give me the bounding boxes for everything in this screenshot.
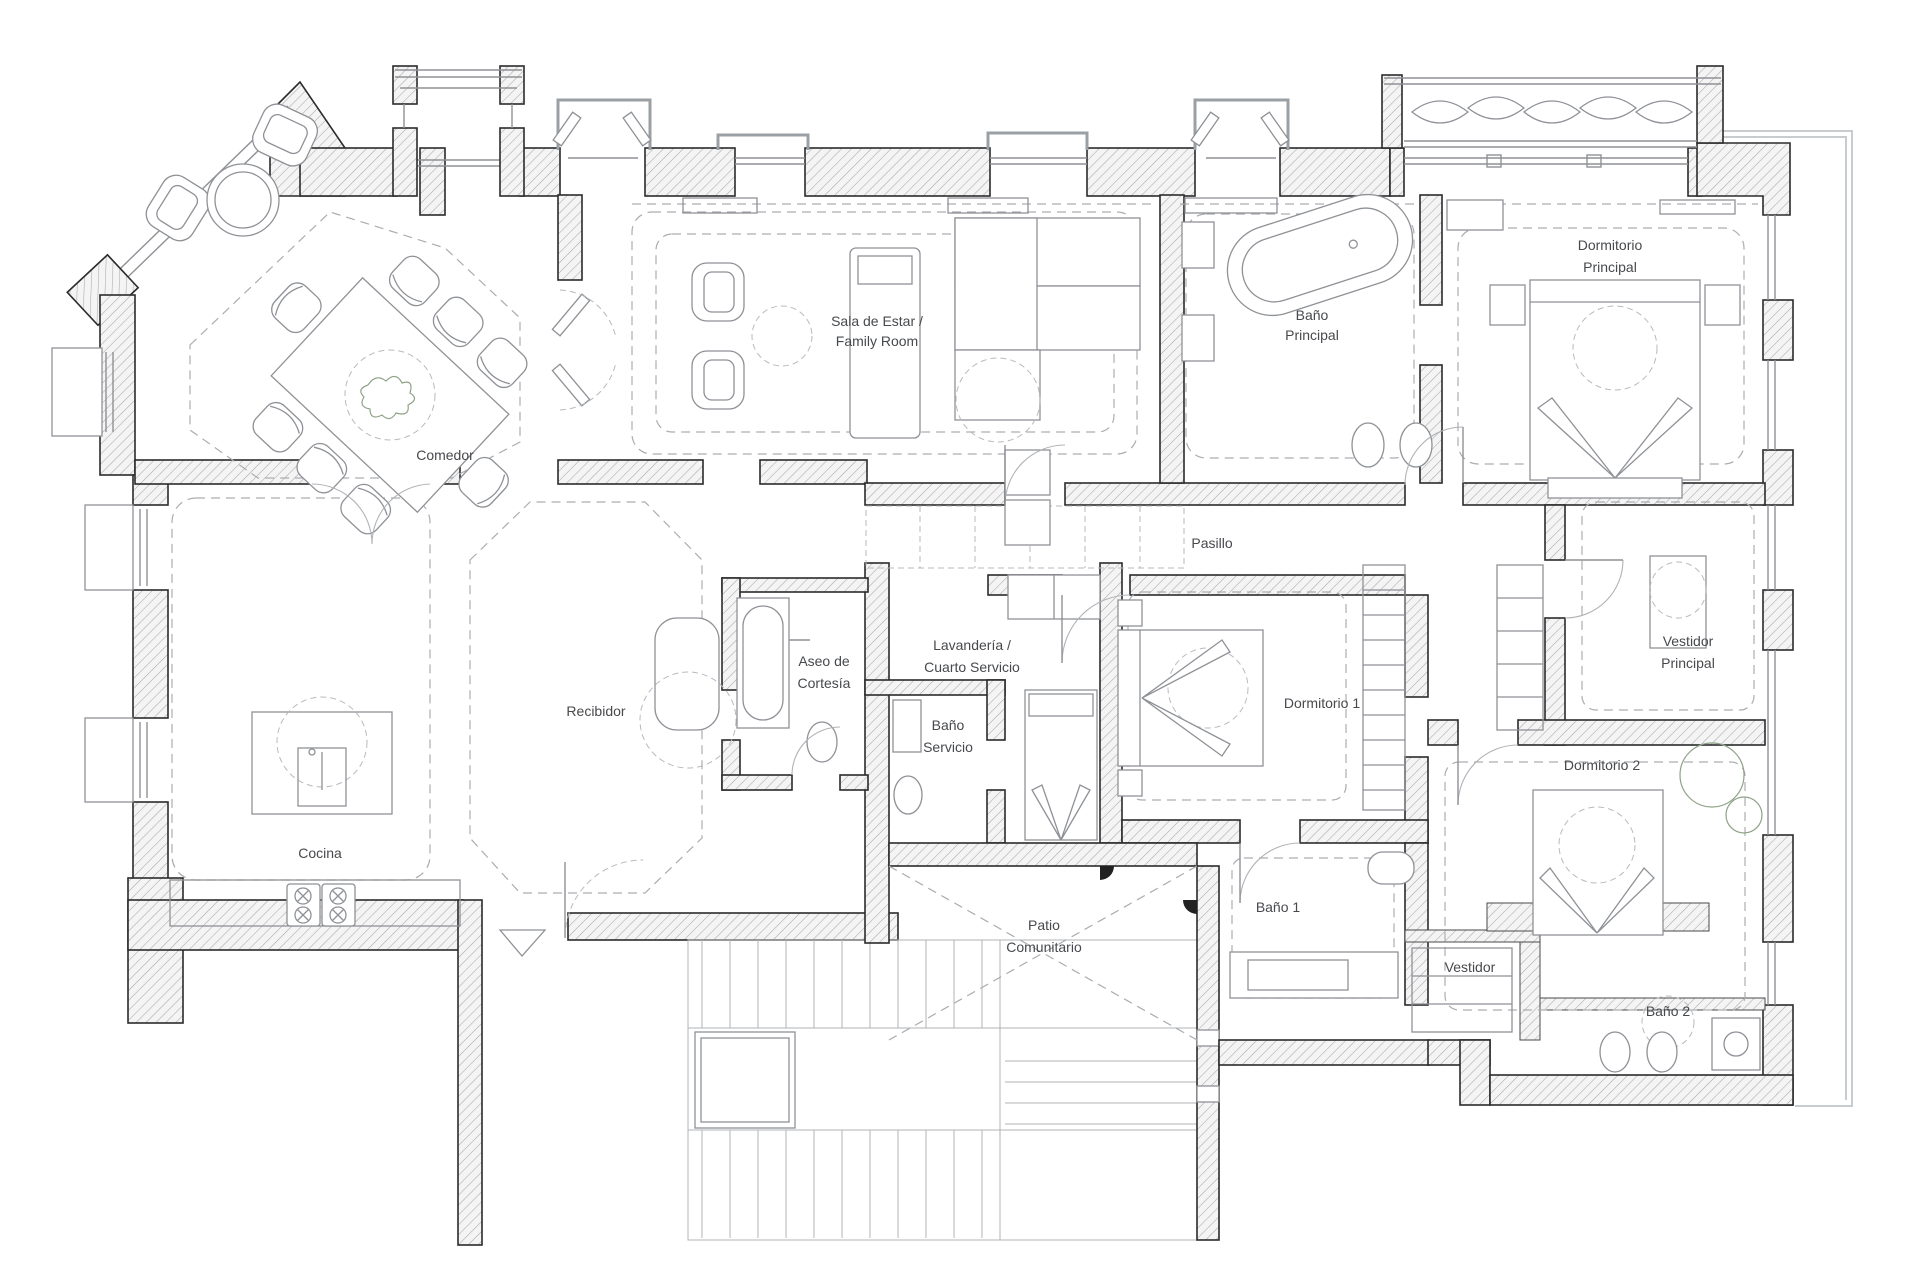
label-lavanderia-1: Lavandería / bbox=[933, 637, 1011, 653]
entry-door bbox=[500, 860, 643, 956]
service-bath-fixtures bbox=[893, 700, 922, 814]
label-dormitorio-principal-1: Dormitorio bbox=[1578, 237, 1643, 253]
label-patio-2: Comunitario bbox=[1006, 939, 1082, 955]
label-recibidor: Recibidor bbox=[566, 703, 625, 719]
staircase bbox=[688, 940, 1197, 1240]
exterior-left-wall bbox=[52, 295, 168, 905]
label-dormitorio1: Dormitorio 1 bbox=[1284, 695, 1360, 711]
laundry-furniture bbox=[1008, 575, 1100, 840]
window-bay-d bbox=[988, 133, 1087, 150]
label-bano-principal-2: Principal bbox=[1285, 327, 1339, 343]
master-bedroom-furniture bbox=[1405, 200, 1740, 498]
dining-set bbox=[200, 206, 580, 583]
exterior-right-wall bbox=[1763, 215, 1793, 1105]
bedroom1-closet bbox=[1363, 565, 1405, 810]
label-bano1: Baño 1 bbox=[1256, 899, 1301, 915]
label-sala-1: Sala de Estar / bbox=[831, 313, 923, 329]
exterior-bottom-left-wall bbox=[128, 878, 898, 1245]
label-aseo-2: Cortesía bbox=[798, 675, 851, 691]
label-comedor: Comedor bbox=[416, 447, 474, 463]
label-bano-servicio-1: Baño bbox=[932, 717, 965, 733]
label-bano2: Baño 2 bbox=[1646, 1003, 1691, 1019]
label-vestidor-principal-1: Vestidor bbox=[1663, 633, 1714, 649]
label-dormitorio-principal-2: Principal bbox=[1583, 259, 1637, 275]
planter-leaves bbox=[1412, 97, 1692, 123]
balcony-bay-b bbox=[553, 100, 651, 158]
floor-plan-canvas: Comedor Sala de Estar / Family Room Baño… bbox=[0, 0, 1920, 1280]
label-bano-principal-1: Baño bbox=[1296, 307, 1329, 323]
balcony-bay-e bbox=[1191, 100, 1289, 158]
balcony-top-left bbox=[393, 66, 524, 196]
label-patio-1: Patio bbox=[1028, 917, 1060, 933]
top-windows-glazing bbox=[417, 155, 1688, 167]
elevator bbox=[695, 1032, 795, 1128]
bath1-fixtures bbox=[1230, 843, 1414, 998]
distributor-closet bbox=[1497, 565, 1543, 730]
floor-plan-page: Comedor Sala de Estar / Family Room Baño… bbox=[0, 0, 1920, 1280]
label-dormitorio2: Dormitorio 2 bbox=[1564, 757, 1640, 773]
planter-balcony bbox=[1382, 66, 1723, 148]
label-aseo-1: Aseo de bbox=[798, 653, 850, 669]
label-pasillo: Pasillo bbox=[1191, 535, 1232, 551]
label-sala-2: Family Room bbox=[836, 333, 918, 349]
label-cocina: Cocina bbox=[298, 845, 342, 861]
label-vestidor-principal-2: Principal bbox=[1661, 655, 1715, 671]
label-bano-servicio-2: Servicio bbox=[923, 739, 973, 755]
label-lavanderia-2: Cuarto Servicio bbox=[924, 659, 1020, 675]
label-vestidor: Vestidor bbox=[1445, 959, 1496, 975]
sectional-sofa bbox=[955, 218, 1140, 420]
